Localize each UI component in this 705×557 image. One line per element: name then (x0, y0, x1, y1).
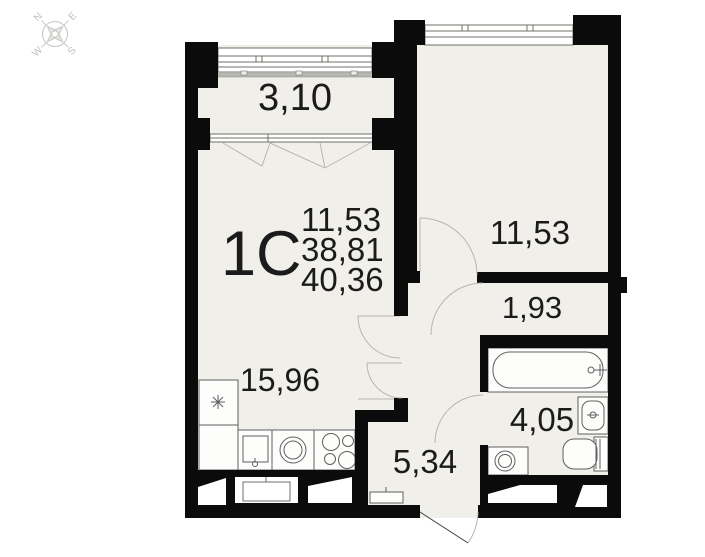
balcony-area-label: 3,10 (258, 77, 332, 119)
floor-plan-page: N E S W (0, 0, 705, 557)
bathroom-area-label: 4,05 (510, 401, 574, 438)
compass-west-label: W (30, 44, 45, 59)
bedroom-window (425, 25, 573, 45)
floor-plan-drawing: N E S W (0, 0, 705, 557)
apartment-type-label: 1С (221, 219, 302, 289)
kitchen-sink (243, 436, 268, 467)
kitchen-lower-window (235, 477, 298, 503)
hallway-area-label: 5,34 (393, 443, 457, 480)
washbasin (578, 397, 608, 434)
corridor-area-label: 1,93 (502, 290, 562, 325)
compass-south-label: S (66, 45, 79, 58)
washing-machine (488, 447, 528, 475)
bathtub (488, 348, 608, 392)
fridge-cabinet (199, 380, 238, 470)
fridge-asterisk-icon (211, 395, 225, 409)
balcony-glazing (218, 48, 372, 72)
toilet (563, 437, 608, 471)
bedroom-area-label: 11,53 (490, 214, 570, 251)
compass-rose: N E S W (13, 0, 96, 76)
kitchen-living-area-label: 15,96 (240, 362, 320, 398)
entrance-doorway-floor (420, 505, 478, 518)
apartment-area-line-3: 40,36 (301, 261, 384, 298)
